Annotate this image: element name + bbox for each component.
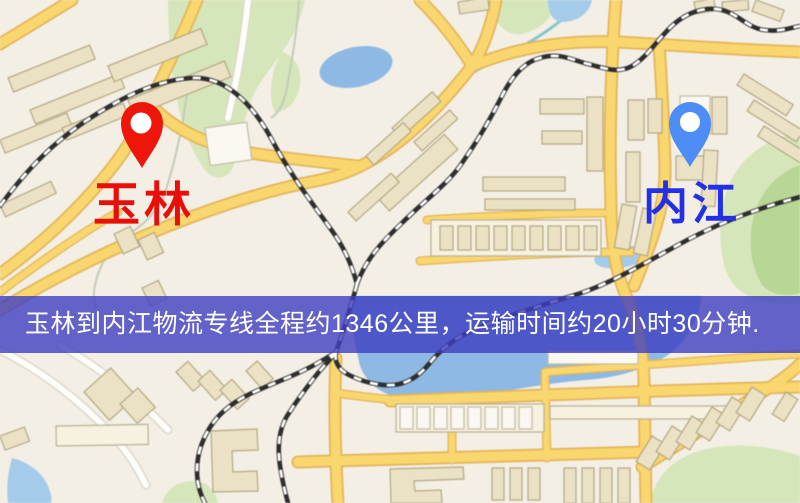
origin-city-label: 玉林 — [93, 178, 195, 231]
map-screenshot: 玉林 内江 玉林到内江物流专线全程约1346公里，运输时间约20小时30分钟. — [0, 0, 800, 503]
destination-pin-icon[interactable] — [669, 102, 711, 167]
destination-city-label: 内江 — [643, 178, 741, 229]
origin-pin-icon[interactable] — [121, 102, 163, 168]
route-info-banner: 玉林到内江物流专线全程约1346公里，运输时间约20小时30分钟. — [0, 296, 800, 353]
markers-overlay: 玉林 内江 — [0, 0, 800, 503]
